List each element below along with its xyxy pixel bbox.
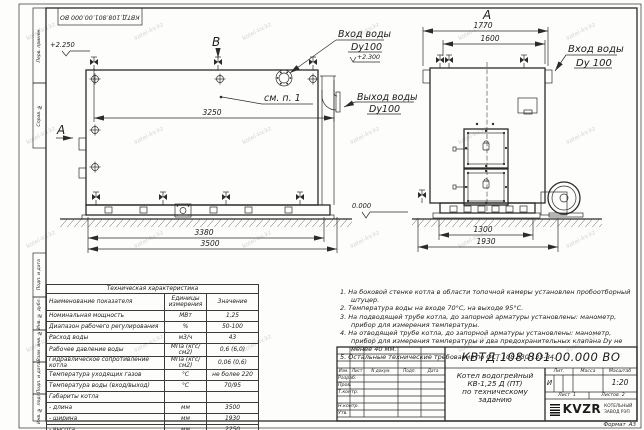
logo-text: KVZR [563, 403, 602, 416]
row-label-utv: Утв. [338, 410, 364, 417]
mass-header: Масса [573, 368, 603, 375]
table-row: - длинамм3500 [47, 403, 259, 414]
frame-column-label: Подп. и дата [33, 253, 46, 297]
table-row: Рабочее давление водыМПа (кгс/см2)0,6 (6… [47, 344, 259, 357]
view-b-label: В [212, 35, 220, 49]
kvzr-logo-icon [550, 404, 560, 416]
upper-door [453, 129, 508, 168]
dim-3380: 3380 [194, 228, 213, 237]
top-stamp: КВТД.108.801.00.000 ВО [58, 8, 142, 25]
logo-caption: КОТЕЛЬНЫЙ ЗАВОД РЭП [604, 404, 632, 415]
spec-col-header: Единицы измерения [165, 294, 207, 311]
col-header-izm: Изм. [337, 368, 350, 375]
outlet-dn-label: Dy100 [369, 104, 400, 115]
lower-door [453, 169, 508, 205]
row-label-tkontr: Т.контр. [338, 389, 364, 396]
dim-1930: 1930 [476, 237, 495, 246]
frame-column-label: Взам. инв. № [33, 330, 46, 362]
anchor-mark-icon [90, 162, 101, 173]
view-a-label: А [482, 8, 491, 22]
table-row: Температура уходящих газов°Сне более 220 [47, 370, 259, 381]
table-row: Расход водым3/ч43 [47, 333, 259, 344]
front-inlet-water-label: Вход воды [568, 44, 624, 55]
sheets-cell: Листов2 [589, 392, 637, 399]
scale-header: Масштаб [603, 368, 637, 375]
table-row: - ширинамм1930 [47, 414, 259, 425]
inlet-flange-circle [276, 70, 292, 86]
valve-icon [445, 55, 453, 68]
doc-number: КВТД.108.801.00.000 ВО [446, 348, 636, 367]
door-handle [453, 185, 456, 189]
row-label-razrab: Разраб. [338, 375, 364, 382]
see-note-label: см. п. 1 [264, 93, 301, 104]
manufacturer-logo: KVZR КОТЕЛЬНЫЙ ЗАВОД РЭП [547, 399, 635, 420]
table-row: Гидравлическое сопротивление котлаМПа (к… [47, 357, 259, 370]
col-header-data: Дата [421, 368, 445, 375]
lit-header: Лит. [545, 368, 573, 375]
sheet-cell: Лист1 [545, 392, 589, 399]
col-header-list: Лист [350, 368, 364, 375]
side-view [56, 40, 414, 253]
format-label: ФорматА3 [556, 421, 636, 429]
inlet-dn-label: Dy100 [351, 42, 382, 53]
dim-1600: 1600 [480, 34, 499, 43]
row-label-nkontr: Н.контр. [338, 403, 364, 410]
table-row: Температура воды (вход/выход)°С70/95 [47, 381, 259, 392]
frame-column-label: Инв. № подл. [33, 394, 46, 421]
table-row: - высотамм2250 [47, 425, 259, 430]
frame-column-label: Подп. и дата [33, 362, 46, 394]
section-a-label: А [56, 123, 65, 137]
table-row: Номинальная мощностьМВт1,25 [47, 311, 259, 322]
col-header-podp: Подп. [398, 368, 421, 375]
table-row: Диапазон рабочего регулирования%50-100 [47, 322, 259, 333]
drawing-sheet: kotel-kv.kzkotel-kv.kzkotel-kv.kzkotel-k… [0, 0, 644, 430]
spec-table: Техническая характеристика Наименование … [46, 284, 259, 430]
note-item: 3. На подводящей трубе котла, до запорно… [340, 314, 636, 329]
anchor-mark-icon [308, 74, 319, 85]
door-handle [453, 147, 456, 151]
anchor-mark-icon [90, 125, 101, 136]
scale-value: 1:20 [603, 375, 637, 392]
valve-icon [214, 57, 222, 70]
doc-description: Котел водогрейный КВ-1,25 Д (ПТ) по техн… [446, 371, 544, 405]
lock-icon [483, 181, 489, 188]
dim-3500: 3500 [200, 239, 219, 248]
spec-col-header: Наименование показателя [47, 294, 165, 311]
frame-column-label: Справ. № [33, 83, 46, 148]
frame-column-label: Перв. примен. [33, 8, 46, 83]
outlet-water-label: Выход воды [357, 92, 418, 103]
dim-1770: 1770 [473, 21, 492, 30]
frame-column-label: Инв. № дубл. [33, 297, 46, 330]
outlet-flange [336, 92, 340, 112]
dim-3250: 3250 [202, 108, 221, 117]
valve-icon [309, 57, 317, 70]
lit-value: И [545, 375, 554, 392]
row-label-prov: Пров. [338, 382, 364, 389]
note-item: 1. На боковой стенке котла в области топ… [340, 289, 636, 304]
top-stamp-text: КВТД.108.801.00.000 ВО [60, 13, 140, 20]
drain-valve-icon [418, 190, 426, 203]
fan [541, 182, 583, 217]
note-item: 2. Температура воды на входе 70°С, на вы… [340, 305, 636, 313]
col-header-docnum: N докум. [364, 368, 398, 375]
inlet-water-label: Вход воды [338, 29, 392, 40]
level-mark-2300: +2.300 [357, 54, 380, 61]
table-row: Габариты котла [47, 392, 259, 403]
valve-icon [436, 55, 444, 68]
level-mark-2250: +2.250 [50, 41, 75, 49]
spec-col-header: Значение [207, 294, 259, 311]
spec-table-title: Техническая характеристика [47, 285, 259, 294]
drain-valve-icon [159, 192, 167, 205]
lock-icon [483, 143, 489, 150]
anchor-mark-icon [215, 74, 226, 85]
drain-valve-icon [296, 192, 304, 205]
drain-valve-icon [92, 192, 100, 205]
control-panel-box [518, 98, 537, 113]
valve-icon [520, 55, 528, 68]
level-mark-zero: 0.000 [352, 202, 371, 210]
drain-valve-icon [222, 192, 230, 205]
front-inlet-dn-label: Dy 100 [576, 58, 612, 69]
dim-1300: 1300 [473, 225, 492, 234]
anchor-mark-icon [90, 74, 101, 85]
